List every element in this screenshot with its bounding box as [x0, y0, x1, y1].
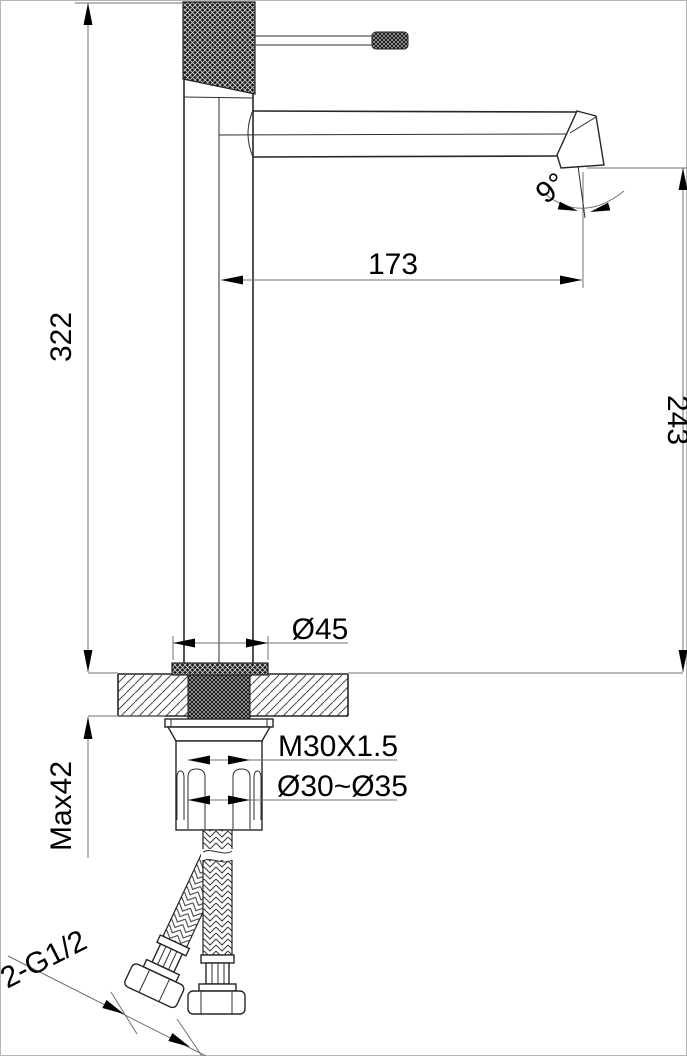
lever-knurled-knob [372, 32, 408, 49]
mounting-nut-assembly [165, 719, 273, 830]
dim-hole-range-label: Ø30~Ø35 [277, 770, 408, 803]
deck-hatch-right [250, 675, 348, 716]
mounting-thread-shank [188, 675, 250, 719]
dim-mounting-thread-label: M30X1.5 [278, 730, 398, 763]
drawing-canvas: 322 173 243 9° Ø45 M30X1.5 Ø30~Ø35 Max42… [0, 0, 687, 1056]
dim-max-deck-thickness-label: Max42 [45, 761, 78, 851]
handle-knurled-grip [183, 2, 255, 94]
dim-overall-height-label: 322 [45, 312, 78, 362]
hose-nut-vertical [188, 991, 245, 1014]
deck-hatch-left [118, 675, 188, 716]
faucet-technical-drawing: 322 173 243 9° Ø45 M30X1.5 Ø30~Ø35 Max42… [0, 0, 687, 1056]
dim-outlet-height-label: 243 [661, 395, 687, 445]
mounting-nut [176, 741, 262, 830]
base-flange-ring [172, 663, 268, 675]
dim-spout-reach-label: 173 [368, 248, 418, 281]
dim-base-diameter-label: Ø45 [292, 613, 349, 646]
